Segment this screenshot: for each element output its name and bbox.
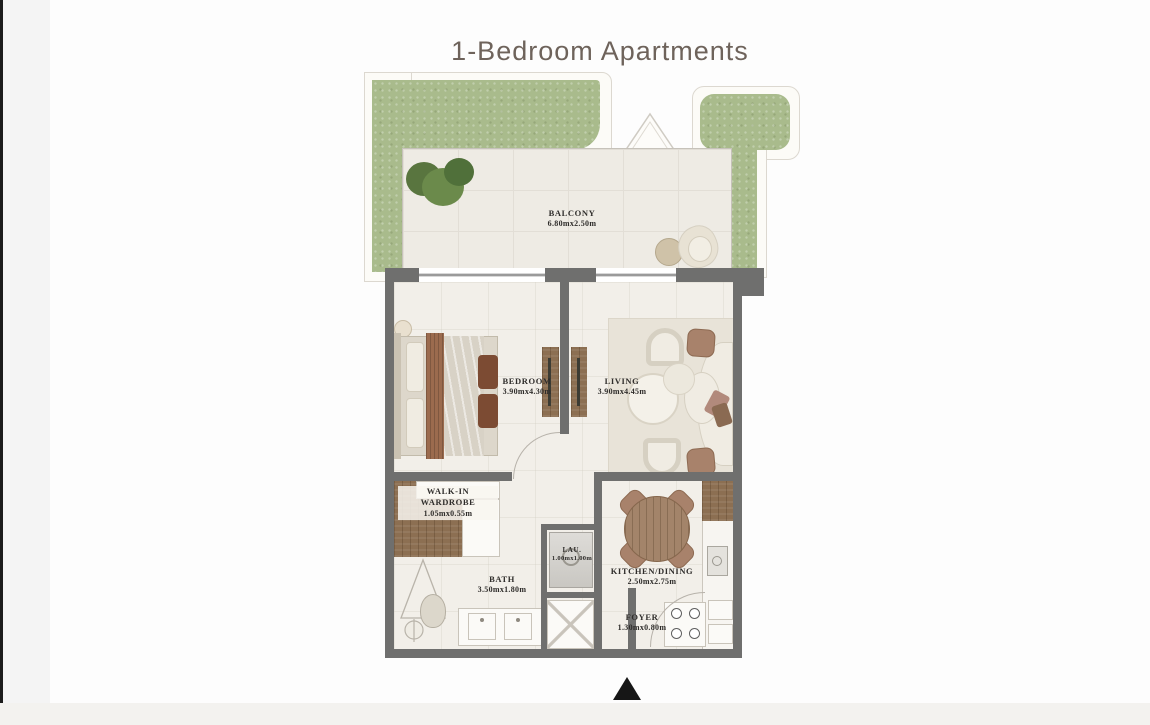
bed-throw (426, 333, 444, 459)
bed-headboard (393, 333, 401, 459)
kitchen-sink-drain-icon (712, 556, 722, 566)
laundry-label: LAU. 1.00mx1.00m (532, 546, 612, 564)
bedroom-window (418, 268, 547, 282)
grass-area-left-column (372, 80, 403, 272)
bath-label: BATH 3.50mx1.80m (442, 574, 562, 596)
wall-shower (541, 592, 547, 658)
wall-stub (742, 268, 764, 296)
grass-area-top-left (372, 80, 600, 150)
faucet-icon (480, 618, 484, 622)
pouf (686, 328, 716, 358)
armchair (643, 438, 681, 476)
page-title: 1-Bedroom Apartments (50, 36, 1150, 67)
wall-left (385, 268, 394, 658)
floor-plan-page: 1-Bedroom Apartments BALCONY 6.80mx2.50m (0, 0, 1150, 725)
wall-bottom (385, 649, 742, 658)
bed-pillow (406, 398, 424, 448)
wall-right (733, 268, 742, 658)
kitchen-drawer (708, 600, 733, 620)
wall-wardrobe (385, 472, 512, 481)
dining-table (624, 496, 690, 562)
wall-laundry (541, 524, 600, 530)
toilet (420, 594, 446, 628)
wall-bedroom-living (560, 282, 569, 434)
kitchen-cabinet (702, 481, 733, 521)
kitchen-drawer (708, 624, 733, 644)
balcony-chair-seat (688, 236, 712, 262)
kitchen-dining-label: KITCHEN/DINING 2.50mx2.75m (592, 566, 712, 588)
living-label: LIVING 3.90mx4.45m (562, 376, 682, 398)
faucet-icon (516, 618, 520, 622)
page-left-margin (3, 0, 50, 725)
grass-area-right-column (729, 136, 757, 272)
page-footer-strip (0, 703, 1150, 725)
tree-icon (444, 158, 474, 186)
wall (545, 268, 595, 282)
bed-pillow (406, 342, 424, 392)
armchair (646, 328, 684, 366)
living-window (595, 268, 678, 282)
balcony-label: BALCONY 6.80mx2.50m (512, 208, 632, 230)
bed-cushion (478, 394, 498, 428)
wall-kitchen (598, 472, 742, 481)
north-arrow-icon (613, 677, 641, 700)
walk-in-wardrobe-label: WALK-IN WARDROBE 1.05mx0.55m (398, 486, 498, 520)
foyer-label: FOYER 1.30mx0.80m (582, 612, 702, 634)
